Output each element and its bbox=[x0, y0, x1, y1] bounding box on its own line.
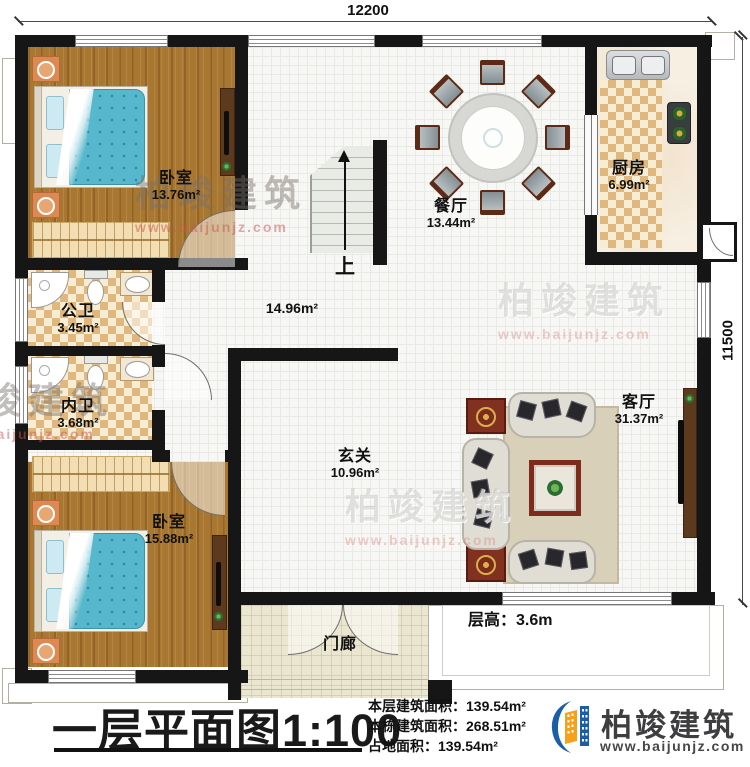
dining-chair bbox=[545, 125, 570, 150]
floor-height-note: 层高：3.6m bbox=[468, 612, 552, 630]
sofa-bottom bbox=[508, 540, 596, 584]
sofa-left bbox=[462, 438, 510, 550]
toilet-tank bbox=[84, 355, 108, 364]
window bbox=[75, 35, 168, 47]
nightstand bbox=[32, 192, 60, 218]
wall bbox=[228, 348, 398, 361]
nightstand bbox=[32, 56, 60, 82]
cushion bbox=[471, 479, 491, 499]
bed-headboard bbox=[35, 87, 42, 187]
sink-basin bbox=[125, 361, 150, 378]
stairs-up-arrow-icon bbox=[338, 150, 350, 162]
room-name: 卧室 bbox=[124, 514, 214, 532]
room-area: 3.45m² bbox=[33, 321, 123, 336]
dimension-top-value: 12200 bbox=[338, 2, 398, 19]
stat-label: 本栋建筑面积： bbox=[368, 718, 466, 734]
room-area: 31.37m² bbox=[594, 412, 684, 427]
room-area: 13.76m² bbox=[131, 188, 221, 203]
room-area: 14.96m² bbox=[252, 300, 332, 316]
stairs-up-arrow-line bbox=[344, 162, 346, 250]
kitchen-sink bbox=[606, 50, 670, 80]
wall bbox=[152, 345, 165, 367]
cushion bbox=[569, 551, 588, 570]
cushion bbox=[473, 508, 494, 529]
pillow bbox=[46, 96, 64, 130]
end-table bbox=[466, 398, 506, 434]
room-name: 公卫 bbox=[33, 303, 123, 321]
wall bbox=[15, 35, 28, 683]
window bbox=[15, 278, 28, 342]
window bbox=[48, 670, 136, 683]
toilet-bowl bbox=[87, 280, 104, 305]
wardrobe bbox=[32, 222, 170, 258]
room-label-hall: 14.96m² bbox=[252, 300, 332, 316]
stat-value: 139.54m² bbox=[438, 738, 498, 754]
room-label-bedroom2: 卧室 15.88m² bbox=[124, 514, 214, 547]
room-name: 餐厅 bbox=[406, 198, 496, 216]
lamp-icon bbox=[37, 61, 55, 79]
sink-basin bbox=[125, 276, 150, 293]
wall bbox=[585, 215, 597, 252]
sink-basin bbox=[612, 56, 636, 75]
wall bbox=[28, 440, 152, 450]
wall bbox=[228, 361, 241, 700]
room-name: 玄关 bbox=[310, 448, 400, 466]
room-name: 客厅 bbox=[594, 394, 684, 412]
lamp-icon bbox=[37, 197, 55, 215]
plant-icon bbox=[547, 480, 563, 496]
sofa-top bbox=[508, 392, 596, 438]
floor-height-value: 3.6m bbox=[516, 612, 552, 629]
stat-label: 本层建筑面积： bbox=[368, 698, 466, 714]
room-name: 门廊 bbox=[295, 636, 385, 654]
drain-icon bbox=[39, 280, 50, 291]
dimension-line-top bbox=[18, 21, 712, 22]
stat-label: 占地面积： bbox=[368, 738, 438, 754]
pillow bbox=[46, 540, 64, 574]
sink bbox=[120, 357, 154, 381]
wall bbox=[235, 47, 248, 210]
wall bbox=[152, 270, 165, 302]
wall bbox=[28, 346, 152, 356]
cushion bbox=[516, 400, 537, 421]
room-label-dining: 餐厅 13.44m² bbox=[406, 198, 496, 231]
dimension-tick bbox=[738, 598, 748, 608]
toilet-tank bbox=[84, 270, 108, 279]
porch-step-line bbox=[231, 679, 438, 680]
room-label-bath-public: 公卫 3.45m² bbox=[33, 303, 123, 336]
toilet bbox=[84, 355, 108, 393]
room-label-porch: 门廊 bbox=[295, 636, 385, 654]
room-label-foyer: 玄关 10.96m² bbox=[310, 448, 400, 481]
tv-icon bbox=[216, 562, 221, 606]
burner-icon bbox=[672, 126, 687, 141]
room-name: 卧室 bbox=[131, 170, 221, 188]
nightstand bbox=[32, 638, 60, 664]
coffee-table bbox=[529, 460, 581, 516]
dimension-right-value: 11500 bbox=[720, 311, 737, 371]
end-table bbox=[466, 546, 506, 582]
stat-value: 268.51m² bbox=[466, 718, 526, 734]
stat-row: 本层建筑面积：139.54m² bbox=[368, 696, 526, 716]
medallion-icon bbox=[476, 555, 496, 575]
tv-icon bbox=[224, 111, 229, 155]
window bbox=[15, 366, 28, 424]
window bbox=[697, 282, 711, 338]
room-label-bath-inner: 内卫 3.68m² bbox=[33, 398, 123, 431]
toilet-bowl bbox=[87, 365, 104, 390]
wardrobe bbox=[32, 456, 170, 492]
room-area: 13.44m² bbox=[406, 216, 496, 231]
dining-chair bbox=[480, 60, 505, 85]
wall bbox=[152, 410, 165, 450]
wall bbox=[585, 252, 697, 265]
lamp-icon bbox=[37, 643, 55, 661]
stat-value: 139.54m² bbox=[466, 698, 526, 714]
room-name: 内卫 bbox=[33, 398, 123, 416]
title-underline bbox=[54, 748, 362, 752]
cushion bbox=[545, 548, 565, 568]
stat-row: 占地面积：139.54m² bbox=[368, 736, 526, 756]
brand-url: www.baijunjz.com bbox=[600, 738, 745, 754]
tv-cabinet bbox=[683, 388, 697, 538]
stat-row: 本栋建筑面积：268.51m² bbox=[368, 716, 526, 736]
dimension-line-right bbox=[742, 37, 743, 605]
area-stats: 本层建筑面积：139.54m² 本栋建筑面积：268.51m² 占地面积：139… bbox=[368, 696, 526, 756]
room-area: 3.68m² bbox=[33, 416, 123, 431]
nightstand bbox=[32, 500, 60, 526]
room-name: 厨房 bbox=[584, 160, 674, 178]
floor-plan: 12200 11500 上 bbox=[0, 0, 750, 767]
lamp-icon bbox=[37, 505, 55, 523]
stove bbox=[667, 102, 691, 144]
dining-table-center bbox=[483, 128, 503, 148]
cushion bbox=[518, 549, 539, 570]
medallion-icon bbox=[476, 407, 496, 427]
floor-height-label: 层高： bbox=[468, 612, 516, 629]
window bbox=[502, 592, 672, 605]
room-label-living: 客厅 31.37m² bbox=[594, 394, 684, 427]
tv-icon bbox=[678, 420, 684, 504]
sink-basin bbox=[641, 56, 665, 75]
room-area: 6.99m² bbox=[584, 178, 674, 193]
plant-icon bbox=[214, 612, 223, 621]
room-area: 10.96m² bbox=[310, 466, 400, 481]
room-label-bedroom1: 卧室 13.76m² bbox=[131, 170, 221, 203]
burner-icon bbox=[672, 106, 687, 121]
room-label-kitchen: 厨房 6.99m² bbox=[584, 160, 674, 193]
dining-chair bbox=[415, 125, 440, 150]
window bbox=[248, 35, 375, 47]
plant-icon bbox=[222, 162, 231, 171]
plant-icon bbox=[685, 394, 694, 403]
wall bbox=[152, 450, 170, 462]
sink bbox=[120, 272, 154, 296]
brand-logo-icon bbox=[545, 698, 595, 756]
wall bbox=[373, 140, 387, 265]
cushion bbox=[566, 401, 588, 423]
bed-headboard bbox=[35, 531, 42, 631]
window bbox=[422, 35, 542, 47]
stairs-up-label: 上 bbox=[325, 256, 365, 279]
cushion bbox=[471, 447, 494, 470]
drain-icon bbox=[39, 365, 50, 376]
wall bbox=[585, 47, 597, 115]
cushion bbox=[541, 398, 561, 418]
room-area: 15.88m² bbox=[124, 532, 214, 547]
porch-step-line bbox=[231, 689, 438, 690]
